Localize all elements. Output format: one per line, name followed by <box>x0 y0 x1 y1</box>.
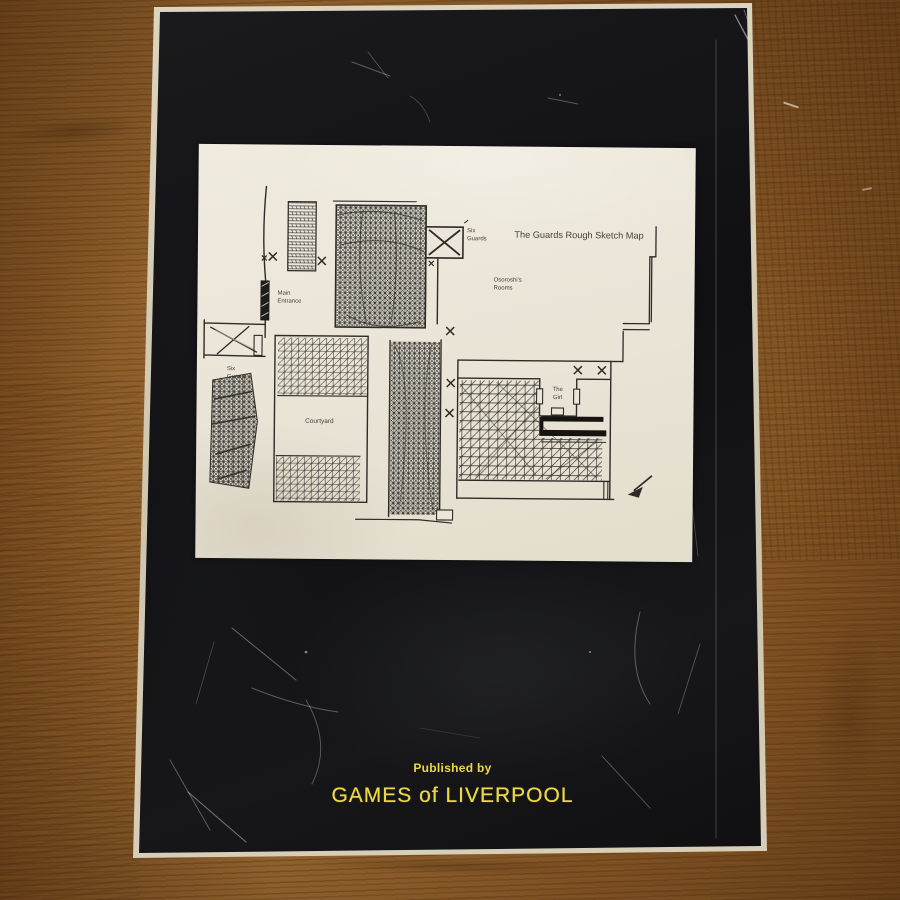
hatched-block-topleft <box>288 202 317 271</box>
label-courtyard: Courtyard <box>305 418 334 425</box>
pencil-line <box>215 330 253 349</box>
label-six-guards-left: Guards <box>227 374 247 380</box>
stairs-line <box>541 442 606 443</box>
x-mark <box>446 327 454 335</box>
label-six-guards-top: Six <box>467 228 475 234</box>
label-main-entrance: Entrance <box>277 299 302 305</box>
photo-scene: The Guards Rough Sketch Map Six Guards O… <box>0 0 900 900</box>
door-jamb <box>537 389 543 404</box>
door-jamb <box>254 335 262 355</box>
label-osoroshi-rooms: Rooms <box>494 285 513 291</box>
label-main-entrance: Main <box>277 291 290 297</box>
hatched-room-topcenter <box>335 205 426 328</box>
corridor-end-cap <box>437 510 453 520</box>
x-mark <box>445 409 453 417</box>
arrow-head <box>628 487 643 498</box>
label-six-guards-top: Guards <box>467 236 487 242</box>
stairs-bar <box>541 419 603 420</box>
map-panel: The Guards Rough Sketch Map Six Guards O… <box>195 144 696 562</box>
x-mark <box>429 261 434 266</box>
six-guards-room-x <box>210 326 257 354</box>
x-mark <box>269 252 277 260</box>
label-the-girl: The <box>552 387 563 393</box>
x-mark <box>318 257 326 265</box>
label-the-girl: Girl <box>553 395 562 401</box>
x-mark <box>447 379 455 387</box>
arrow-icon <box>634 476 652 491</box>
map-title: The Guards Rough Sketch Map <box>514 230 643 241</box>
corridor-hatch <box>390 342 441 515</box>
label-osoroshi-rooms: Osoroshi's <box>494 277 522 283</box>
tick-mark <box>464 220 468 223</box>
sketch-map: The Guards Rough Sketch Map Six Guards O… <box>195 144 696 562</box>
publisher-block: Published by GAMES of LIVERPOOL <box>155 761 750 808</box>
publisher-name-text: GAMES of LIVERPOOL <box>155 784 750 808</box>
courtyard-hatch-bottom <box>276 457 360 502</box>
label-six-guards-left: Six <box>227 366 235 372</box>
girl-room-step <box>551 408 563 415</box>
x-mark <box>598 366 606 374</box>
hatched-areas <box>210 201 605 516</box>
door-jamb <box>574 389 580 404</box>
x-mark <box>574 366 582 374</box>
published-by-text: Published by <box>155 761 750 775</box>
hatched-blob-bottomleft <box>210 373 258 488</box>
courtyard-hatch-top <box>278 338 367 396</box>
stairs-bar <box>539 433 606 434</box>
